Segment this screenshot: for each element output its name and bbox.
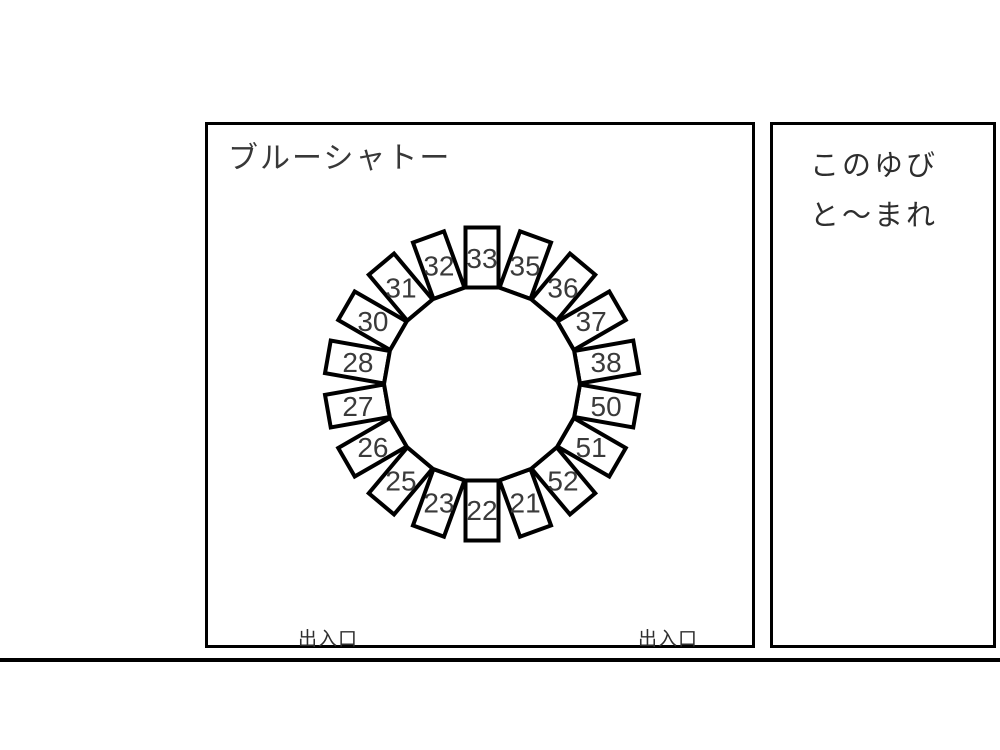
seat-number-32: 32 <box>423 251 454 282</box>
seat-number-26: 26 <box>357 432 388 463</box>
seat-number-23: 23 <box>423 487 454 518</box>
caption-line-1: このゆび <box>810 141 993 191</box>
seat-number-28: 28 <box>342 347 373 378</box>
seat-number-21: 21 <box>510 487 541 518</box>
seat-number-35: 35 <box>510 251 541 282</box>
seat-number-36: 36 <box>547 273 578 304</box>
seat-number-31: 31 <box>385 273 416 304</box>
seat-number-50: 50 <box>591 391 622 422</box>
caption-line-2: と〜まれ <box>810 191 993 241</box>
seat-number-30: 30 <box>357 306 388 337</box>
seat-number-33: 33 <box>466 243 497 274</box>
seating-chart-panel: ブルーシャトー 33353637385051522122232526272830… <box>205 122 755 648</box>
seat-number-51: 51 <box>576 432 607 463</box>
exit-label-right: 出入口 <box>638 624 698 651</box>
seat-number-25: 25 <box>385 466 416 497</box>
seat-number-22: 22 <box>466 495 497 526</box>
seat-number-27: 27 <box>342 391 373 422</box>
seating-ring-diagram: 333536373850515221222325262728303132 <box>208 125 752 645</box>
seat-number-52: 52 <box>547 466 578 497</box>
seat-number-38: 38 <box>591 347 622 378</box>
seat-number-37: 37 <box>576 306 607 337</box>
caption-panel: このゆび と〜まれ <box>770 122 996 648</box>
floor-divider-line <box>0 658 1000 662</box>
page-background: ブルーシャトー 33353637385051522122232526272830… <box>0 0 1000 750</box>
round-table <box>384 287 580 480</box>
exit-label-left: 出入口 <box>298 624 358 651</box>
